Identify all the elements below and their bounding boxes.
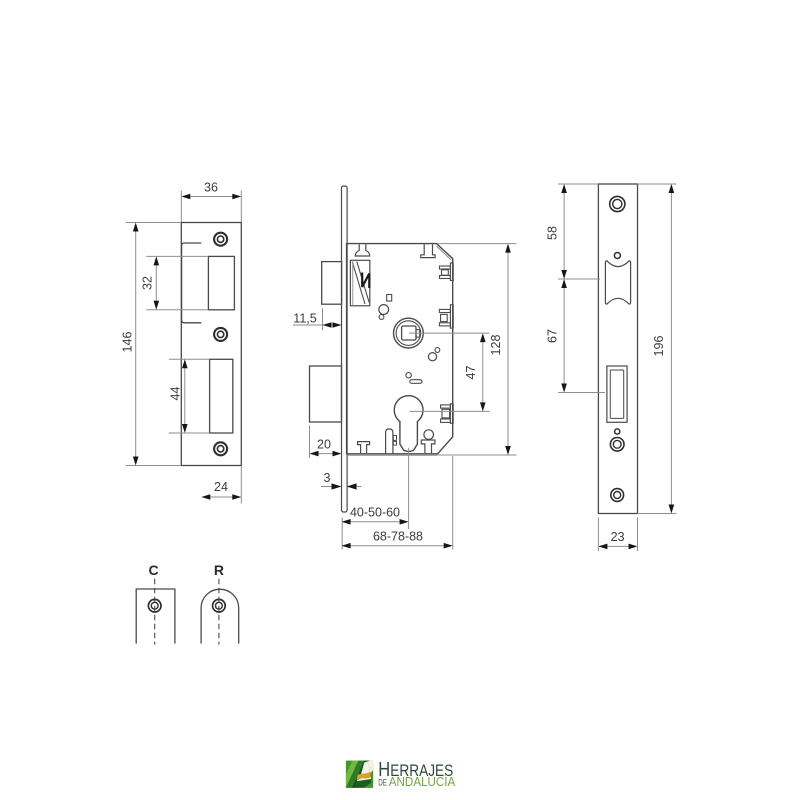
svg-text:32: 32 bbox=[141, 276, 155, 290]
svg-text:3: 3 bbox=[324, 471, 331, 485]
svg-text:58: 58 bbox=[546, 226, 560, 240]
svg-text:20: 20 bbox=[317, 438, 331, 452]
svg-text:ANDALUCÍA: ANDALUCÍA bbox=[389, 774, 456, 789]
svg-text:47: 47 bbox=[464, 366, 478, 380]
svg-text:68-78-88: 68-78-88 bbox=[373, 529, 423, 543]
svg-text:40-50-60: 40-50-60 bbox=[350, 506, 400, 520]
svg-text:36: 36 bbox=[204, 181, 218, 195]
svg-text:C: C bbox=[149, 562, 159, 578]
svg-text:24: 24 bbox=[214, 480, 228, 494]
svg-text:128: 128 bbox=[489, 335, 503, 356]
svg-text:196: 196 bbox=[652, 336, 666, 357]
svg-text:11,5: 11,5 bbox=[293, 312, 316, 326]
svg-text:44: 44 bbox=[169, 387, 183, 401]
svg-text:DE: DE bbox=[378, 778, 387, 788]
svg-text:146: 146 bbox=[121, 332, 135, 353]
svg-text:67: 67 bbox=[546, 329, 560, 343]
svg-text:R: R bbox=[214, 562, 224, 578]
svg-text:23: 23 bbox=[611, 530, 625, 544]
